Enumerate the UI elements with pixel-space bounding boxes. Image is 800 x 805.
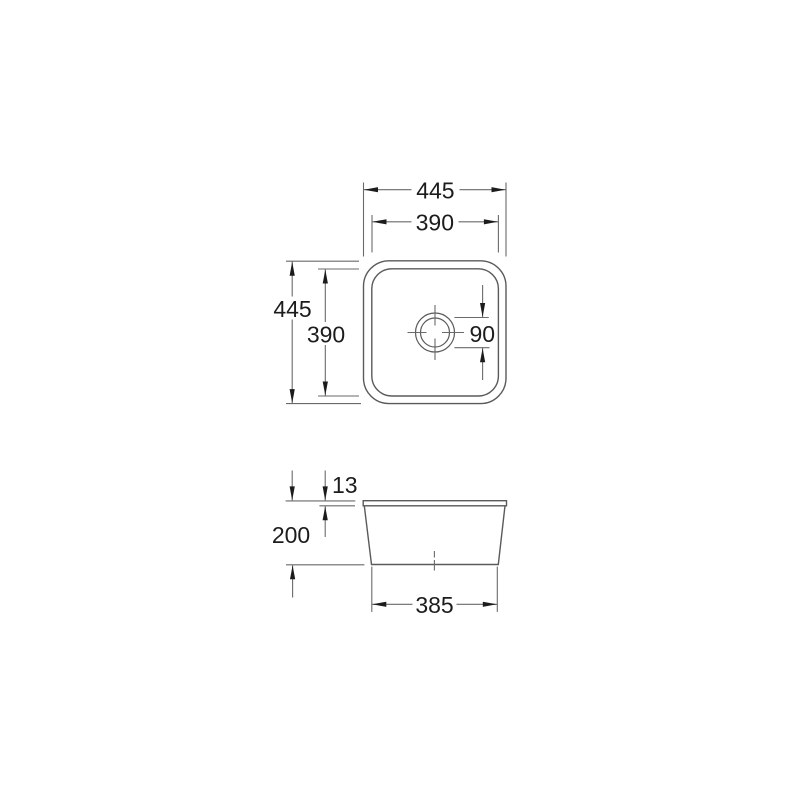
- svg-text:200: 200: [272, 522, 310, 548]
- svg-text:13: 13: [332, 472, 358, 498]
- svg-text:90: 90: [470, 321, 496, 347]
- svg-text:385: 385: [415, 592, 453, 618]
- svg-text:390: 390: [416, 209, 454, 235]
- svg-text:445: 445: [416, 177, 454, 203]
- svg-text:445: 445: [273, 296, 311, 322]
- svg-text:390: 390: [307, 322, 345, 348]
